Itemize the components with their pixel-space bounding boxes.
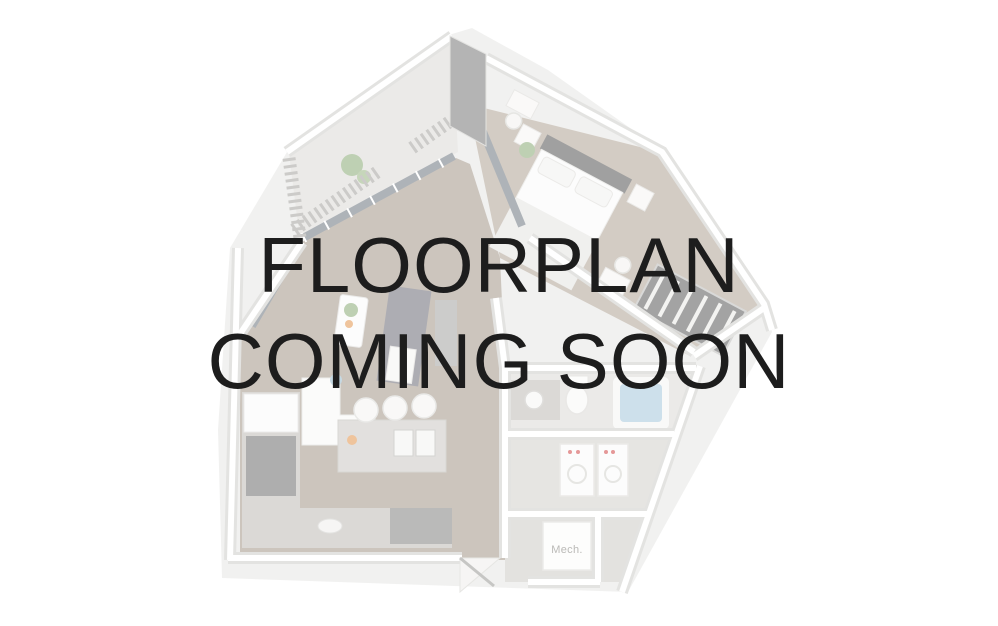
blue-pillow xyxy=(330,374,342,386)
tall-wall-block xyxy=(450,36,486,146)
stove xyxy=(246,436,296,496)
bathtub-water xyxy=(620,384,662,422)
media-console xyxy=(435,300,457,366)
floorplan-placeholder-screen: Mech. FLOORPLAN COMING SOON xyxy=(0,0,998,626)
kitchen-sink xyxy=(318,519,342,533)
toilet-tank xyxy=(566,376,588,386)
mech-room: Mech. xyxy=(543,522,591,570)
island-sink-right xyxy=(416,430,435,456)
mech-room-label: Mech. xyxy=(551,544,582,556)
island-flowers xyxy=(347,435,357,445)
chaise xyxy=(386,346,416,383)
bedroom-plant xyxy=(519,142,535,158)
vanity-sink xyxy=(525,391,543,409)
bar-stool xyxy=(354,398,378,422)
toilet xyxy=(566,386,588,414)
floorplan-image: Mech. xyxy=(0,0,998,626)
orange-flowers xyxy=(345,320,353,328)
laundry xyxy=(560,444,628,496)
bar-stool xyxy=(383,396,407,420)
bar-stool xyxy=(412,394,436,418)
dishwasher xyxy=(390,508,452,544)
table-plant xyxy=(344,303,358,317)
island-sink-left xyxy=(394,430,413,456)
refrigerator xyxy=(244,394,298,432)
